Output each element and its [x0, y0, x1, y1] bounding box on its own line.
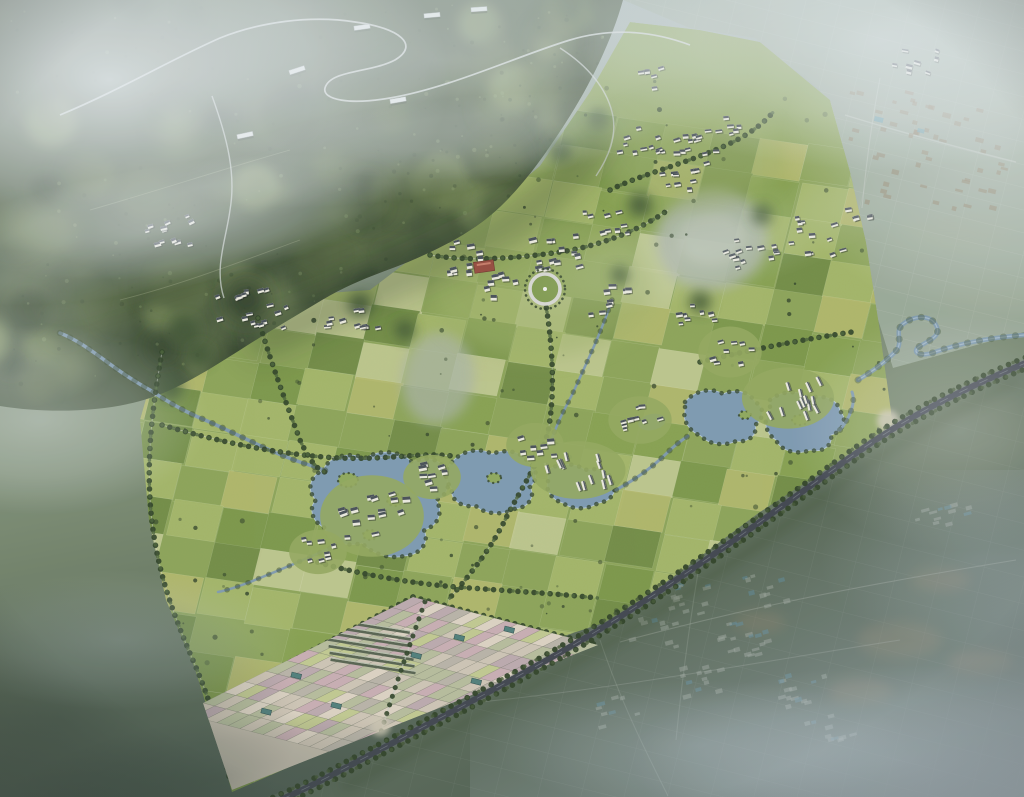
fog-overlay — [0, 0, 1024, 797]
scene-canvas — [0, 0, 1024, 797]
aerial-rendering — [0, 0, 1024, 797]
